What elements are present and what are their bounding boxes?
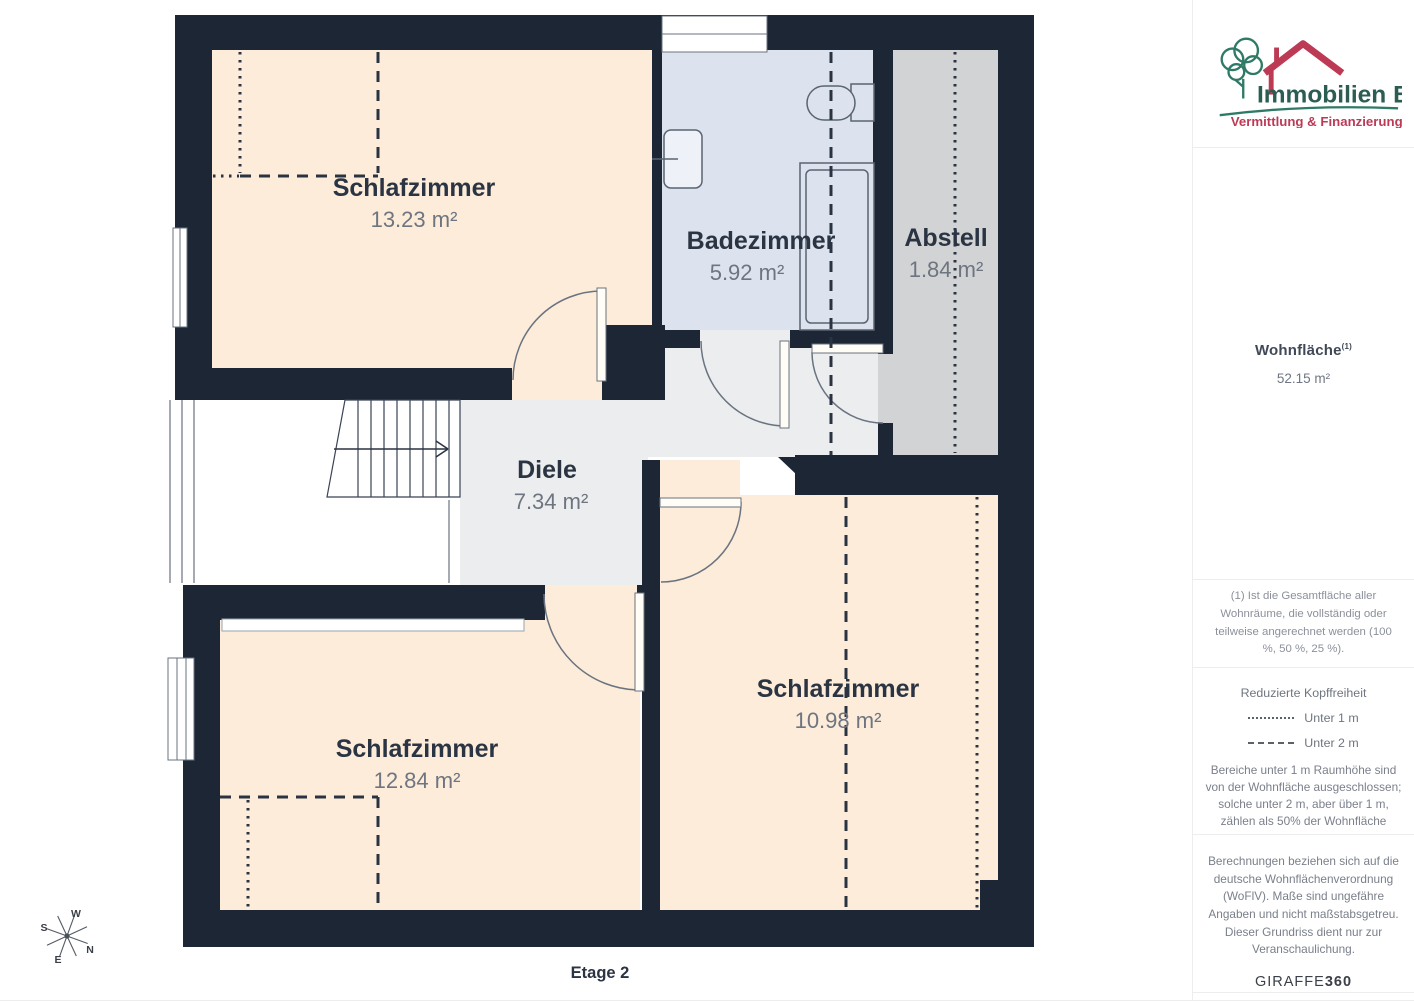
svg-text:13.23 m²: 13.23 m²: [371, 207, 458, 232]
svg-text:Schlafzimmer: Schlafzimmer: [336, 735, 499, 763]
svg-text:5.92 m²: 5.92 m²: [710, 260, 785, 285]
svg-text:Schlafzimmer: Schlafzimmer: [757, 675, 920, 703]
svg-text:Immobilien Bart: Immobilien Bart: [1256, 81, 1401, 108]
svg-text:S: S: [40, 922, 47, 934]
headroom-card: Reduzierte Kopffreiheit Unter 1 m Unter …: [1193, 668, 1414, 835]
svg-text:E: E: [54, 954, 61, 966]
info-sidebar: Immobilien Bart Vermittlung & Finanzieru…: [1192, 0, 1414, 1000]
disclaimer-text: Berechnungen beziehen sich auf die deuts…: [1204, 853, 1404, 959]
legend-under-2m: Unter 2 m: [1248, 736, 1358, 750]
tree-icon: [1221, 38, 1261, 98]
window-bottom-left-room: [168, 658, 194, 760]
footnote-marker: (1): [1342, 342, 1352, 351]
svg-text:Vermittlung & Finanzierung: Vermittlung & Finanzierung: [1230, 113, 1401, 127]
headroom-title: Reduzierte Kopffreiheit: [1241, 686, 1367, 700]
svg-text:12.84 m²: 12.84 m²: [374, 768, 461, 793]
living-area-card: Wohnfläche(1) 52.15 m²: [1193, 148, 1414, 580]
svg-text:Schlafzimmer: Schlafzimmer: [333, 174, 496, 202]
svg-text:Badezimmer: Badezimmer: [687, 227, 836, 255]
svg-text:10.98 m²: 10.98 m²: [795, 708, 882, 733]
disclaimer-card: Berechnungen beziehen sich auf die deuts…: [1193, 835, 1414, 993]
window-top-left-room: [173, 228, 187, 327]
svg-text:N: N: [86, 944, 94, 956]
footnote-text: (1) Ist die Gesamtfläche aller Wohnräume…: [1211, 588, 1397, 659]
company-logo: Immobilien Bart Vermittlung & Finanzieru…: [1206, 20, 1402, 128]
headroom-description: Bereiche unter 1 m Raumhöhe sind von der…: [1205, 762, 1403, 830]
svg-text:7.34 m²: 7.34 m²: [514, 489, 589, 514]
svg-text:Diele: Diele: [517, 456, 577, 484]
wall-niche-strip: [222, 619, 524, 631]
svg-text:1.84 m²: 1.84 m²: [909, 257, 984, 282]
footnote-card: (1) Ist die Gesamtfläche aller Wohnräume…: [1193, 580, 1414, 668]
legend-under-1m: Unter 1 m: [1248, 711, 1358, 725]
dashed-line-icon: [1248, 742, 1294, 744]
svg-text:Abstell: Abstell: [904, 224, 987, 252]
dotted-line-icon: [1248, 717, 1294, 719]
floor-plan: Schlafzimmer 13.23 m² Badezimmer 5.92 m²…: [0, 0, 1192, 1000]
compass-icon: W S N E: [40, 908, 93, 966]
floorplan-page: Schlafzimmer 13.23 m² Badezimmer 5.92 m²…: [0, 0, 1414, 1001]
window-bathroom: [662, 16, 767, 52]
giraffe360-brand: GIRAFFE360: [1255, 974, 1352, 990]
living-area-value: 52.15 m²: [1277, 371, 1330, 386]
toilet-icon: [807, 84, 874, 121]
logo-card: Immobilien Bart Vermittlung & Finanzieru…: [1193, 0, 1414, 148]
floor-label: Etage 2: [571, 964, 630, 982]
living-area-title: Wohnfläche(1): [1255, 342, 1352, 359]
svg-text:W: W: [71, 908, 81, 920]
